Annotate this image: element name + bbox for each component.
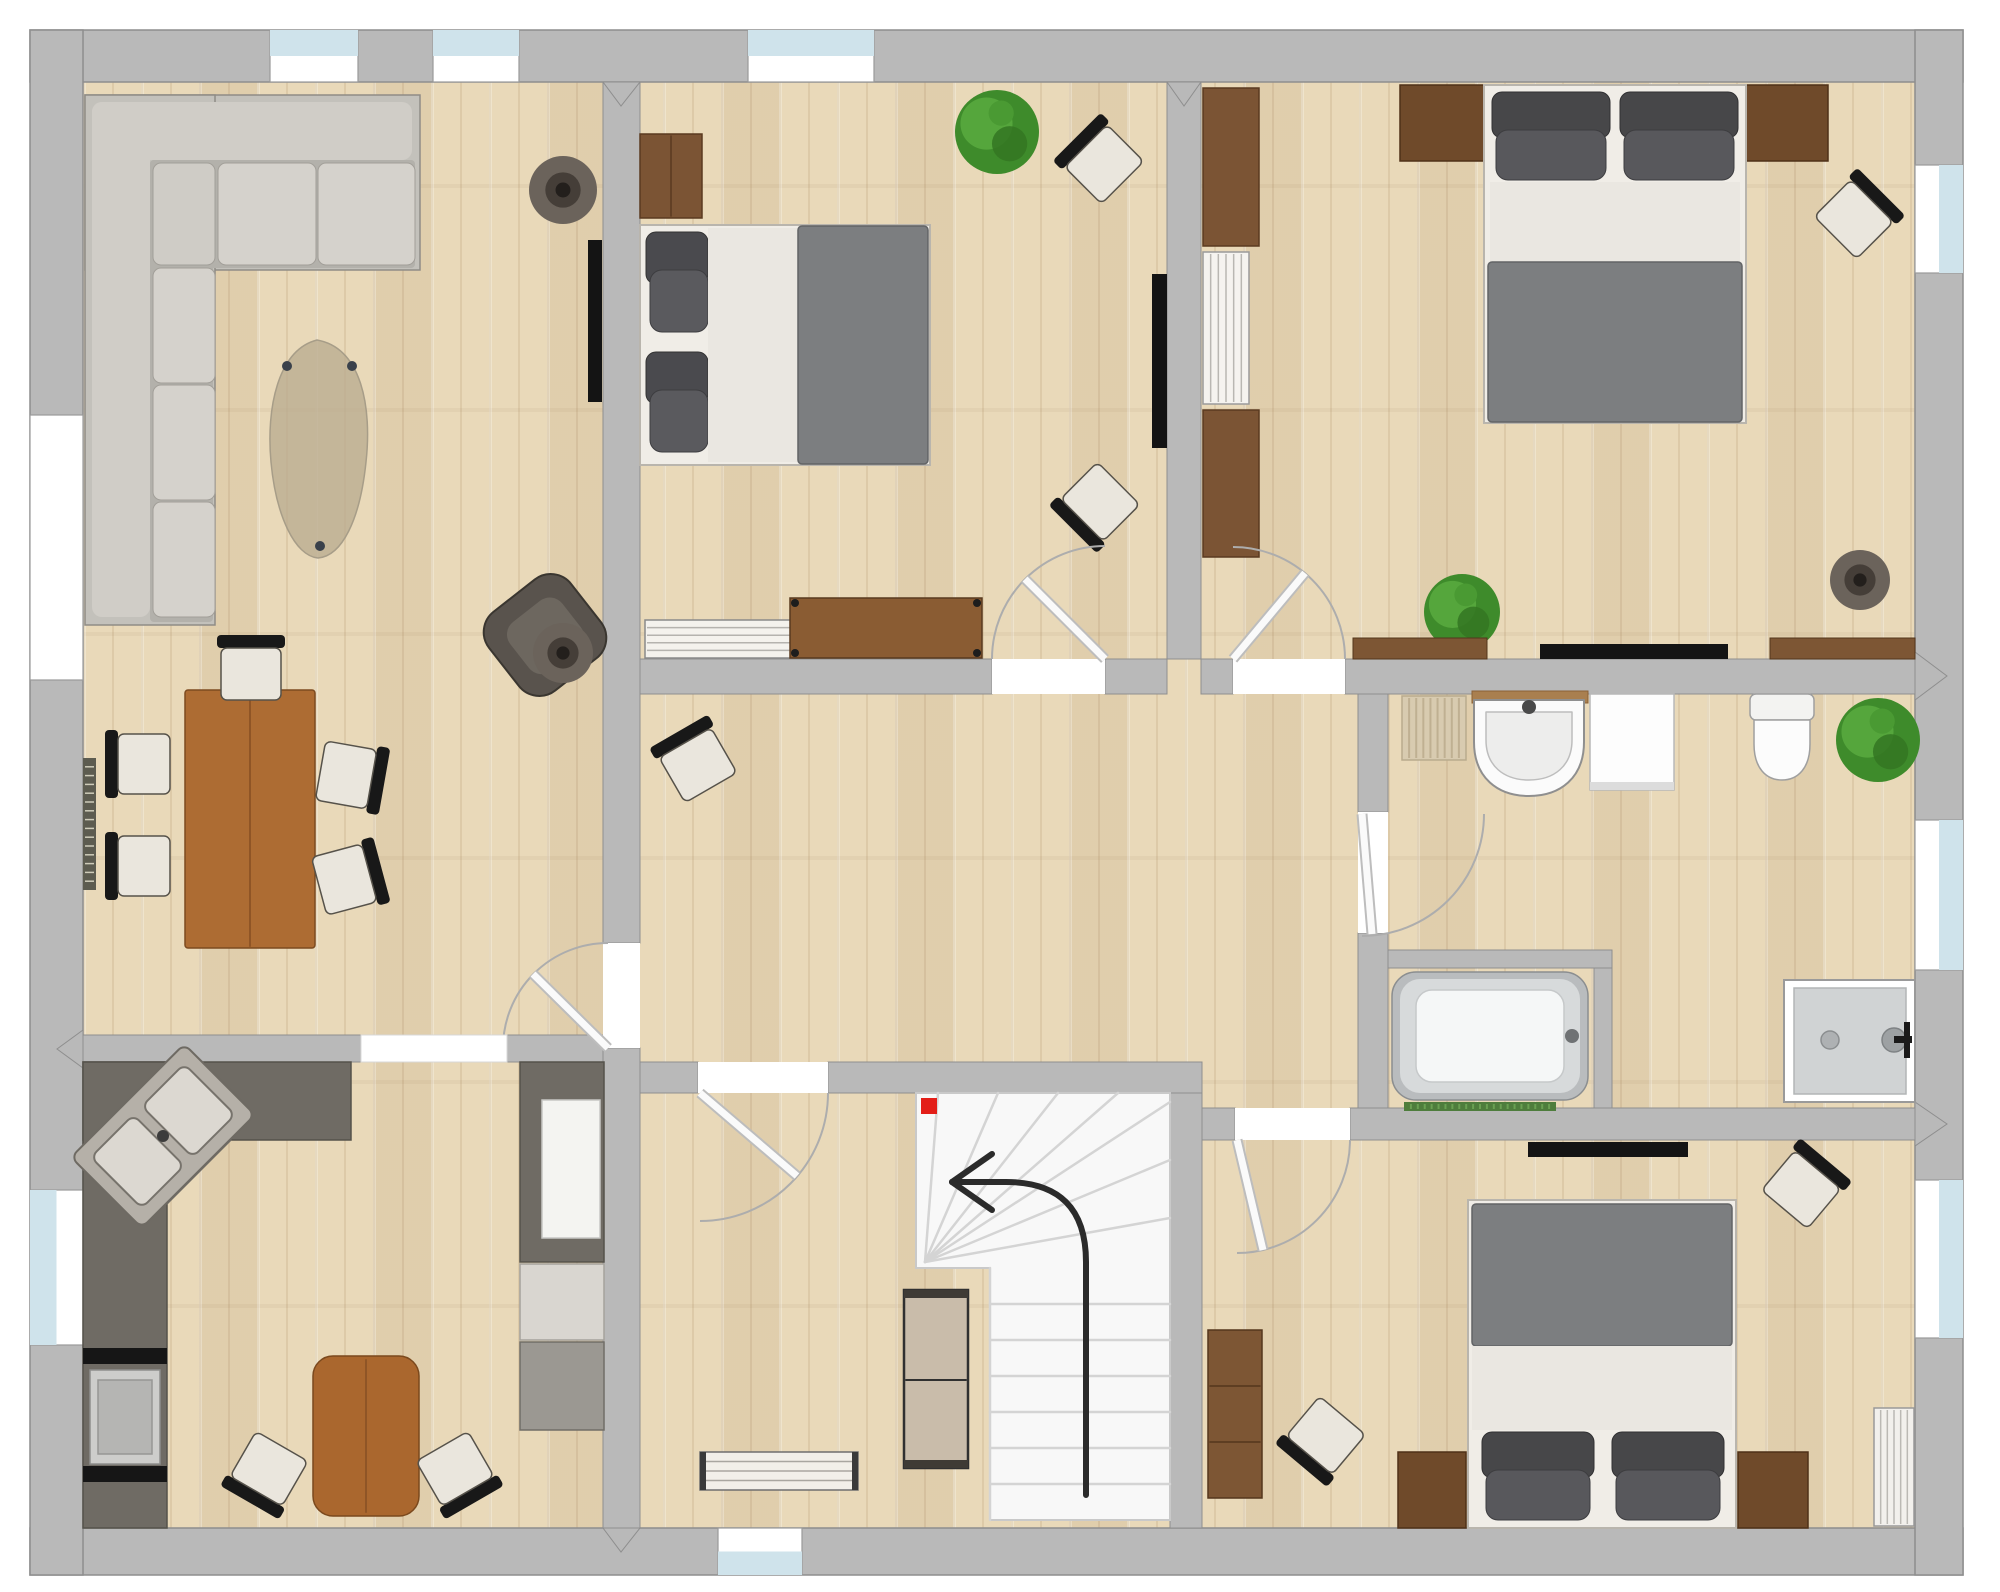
bedroom2-chair (1811, 168, 1905, 262)
bedroom2-pillow-1b (1496, 130, 1606, 180)
bedroom1-sideboard-dot-2 (973, 599, 981, 607)
kitchen-chair-1 (220, 1429, 311, 1519)
tv-bedroom1 (1152, 274, 1167, 448)
dining-chair-3 (105, 832, 170, 900)
sofa-cushion-v3 (153, 502, 215, 617)
window-top-bedroom1-glass (748, 30, 874, 56)
tv-living (588, 240, 602, 402)
bath-mat (1402, 696, 1466, 760)
sofa-cushion-v2 (153, 385, 215, 500)
bedroom3-chair-top (1758, 1138, 1852, 1232)
bedroom2-sheet (1490, 182, 1740, 264)
wall-bath-left-a (1358, 694, 1388, 812)
side-table-lamp (529, 156, 597, 224)
bedroom3-dresser (1208, 1330, 1262, 1498)
door-bedroom3 (1235, 1108, 1350, 1253)
bath-plant (1836, 698, 1920, 782)
wall-stairs-top-a (640, 1062, 698, 1093)
kitchen-chair-2 (413, 1429, 504, 1519)
bedroom2-wardrobe-1 (1203, 88, 1259, 246)
stairs-bench-end-right (852, 1452, 858, 1490)
window-right-bedroom2-glass (1939, 165, 1963, 273)
wall-kitchen-top-a (83, 1035, 361, 1062)
wall-living-bedroom1 (603, 82, 640, 943)
bedroom2-sideboard-right (1770, 638, 1915, 659)
dining-chair-1 (217, 635, 285, 700)
sofa-cushion-h1 (218, 163, 316, 265)
stairs-bench-end-left (700, 1452, 706, 1490)
radiator-dining (83, 758, 96, 890)
kitchen-unit-low (520, 1342, 604, 1430)
window-left-kitchen-glass (30, 1190, 57, 1345)
bathtub-mat-stripes (1411, 1104, 1549, 1109)
kitchen-sink-faucet (157, 1130, 169, 1142)
floor-plan-drawing (0, 0, 2000, 1592)
bedroom1-bench (645, 620, 795, 658)
dining-chair-4 (315, 737, 391, 815)
bedroom3-nightstand-right (1738, 1452, 1808, 1528)
window-left-living (30, 415, 83, 680)
dining-chair-5 (310, 837, 390, 920)
bedroom1-sheet (708, 228, 800, 462)
wall-bottom (30, 1528, 1963, 1575)
wall-tub-niche-right (1594, 968, 1612, 1108)
bedroom3-duvet (1472, 1204, 1732, 1346)
wall-tub-niche-top (1388, 950, 1612, 968)
bedroom1-duvet (798, 226, 928, 464)
stairs-cabinet-bottom (904, 1460, 968, 1468)
bedroom2-duvet (1488, 262, 1742, 422)
bath-sink-faucet (1522, 700, 1536, 714)
wall-bedroom2-bottom-a (1201, 659, 1233, 694)
bedroom2-nightstand-left (1400, 85, 1484, 161)
bedroom3-pillow-1b (1486, 1470, 1590, 1520)
sofa-bolster-left (92, 102, 150, 617)
sofa-cushion-corner (153, 163, 215, 265)
bedroom1-chair-1 (1053, 113, 1147, 207)
wall-bedroom1-bedroom2 (1167, 82, 1201, 659)
window-right-bathroom-glass (1939, 820, 1963, 970)
bedroom3-pillow-2b (1616, 1470, 1720, 1520)
kitchen-unit-mid (520, 1264, 604, 1340)
bedroom2-wardrobe-2 (1203, 410, 1259, 557)
bathtub-inner (1416, 990, 1564, 1082)
bedroom1-chair-2 (1049, 459, 1143, 553)
bedroom2-pillow-2b (1624, 130, 1734, 180)
toilet-bowl (1754, 720, 1810, 780)
wall-bedroom1-bottom-a (640, 659, 992, 694)
sofa-cushion-v1 (153, 268, 215, 383)
bedroom3-sheet (1472, 1346, 1732, 1430)
wall-stairs-top-b (828, 1062, 1202, 1093)
window-right-bedroom3-glass (1939, 1180, 1963, 1338)
coffee-table-foot-3 (315, 541, 325, 551)
bedroom2-nightstand-right (1746, 85, 1828, 161)
window-top-living-1-glass (270, 30, 358, 56)
stairs-cabinet-top (904, 1290, 968, 1298)
wall-bath-left-b (1358, 933, 1388, 1108)
tv-bedroom2 (1540, 644, 1728, 659)
coffee-table-foot-2 (347, 361, 357, 371)
shower-arm (1894, 1036, 1912, 1043)
door-stairs (698, 1062, 828, 1221)
dining-chair-2 (105, 730, 170, 798)
stool (533, 623, 593, 683)
door-living (503, 943, 640, 1048)
bedroom1-pillow-1b (650, 270, 708, 332)
window-bottom-stairs-glass (718, 1552, 802, 1576)
oven-door (98, 1380, 152, 1454)
hallway-chair (649, 714, 740, 804)
wall-stairs-right (1170, 1093, 1202, 1528)
shower-drain (1821, 1031, 1839, 1049)
toilet-tank (1750, 694, 1814, 720)
bedroom1-sideboard-dot-1 (791, 599, 799, 607)
bedroom1-sideboard-dot-4 (973, 649, 981, 657)
bedroom2-lamp (1830, 550, 1890, 610)
bath-sink-basin (1486, 712, 1572, 780)
wall-bath-bottom-a (1202, 1108, 1235, 1140)
bath-cabinet (1590, 694, 1674, 790)
coffee-table-foot-1 (282, 361, 292, 371)
bedroom1-sideboard-dot-3 (791, 649, 799, 657)
bedroom1-pillow-2b (650, 390, 708, 452)
bathtub-faucet (1565, 1029, 1579, 1043)
bedroom1-plant (955, 90, 1039, 174)
door-bedroom2 (1233, 547, 1345, 694)
bedroom3-nightstand-left (1398, 1452, 1466, 1528)
bedroom2-sideboard-left (1353, 638, 1487, 659)
wall-kitchen-top-b (507, 1035, 603, 1062)
bedroom3-chair-left (1275, 1394, 1369, 1488)
stove-strip-bottom (83, 1466, 167, 1482)
wall-bedroom1-bottom-b (1105, 659, 1167, 694)
kitchen-unit-tall-inner (542, 1100, 600, 1238)
wall-bath-bottom-b (1350, 1108, 1915, 1140)
room-hallway (640, 694, 1358, 1062)
smoke-detector-marker (921, 1098, 937, 1114)
bedroom1-sideboard (790, 598, 982, 658)
door-bathroom (1358, 812, 1484, 936)
floor-plan (0, 0, 2000, 1592)
stove-strip-top (83, 1348, 167, 1364)
opening-kitchen (361, 1035, 507, 1062)
tv-bedroom3 (1528, 1142, 1688, 1157)
wall-bedroom2-bottom-b (1345, 659, 1915, 694)
wall-kitchen-stairs (603, 1048, 640, 1528)
window-top-living-2-glass (433, 30, 519, 56)
bath-cabinet-shadow (1590, 782, 1674, 790)
coffee-table-glass (270, 340, 368, 558)
sofa-cushion-h2 (318, 163, 415, 265)
door-bedroom1 (992, 546, 1105, 694)
